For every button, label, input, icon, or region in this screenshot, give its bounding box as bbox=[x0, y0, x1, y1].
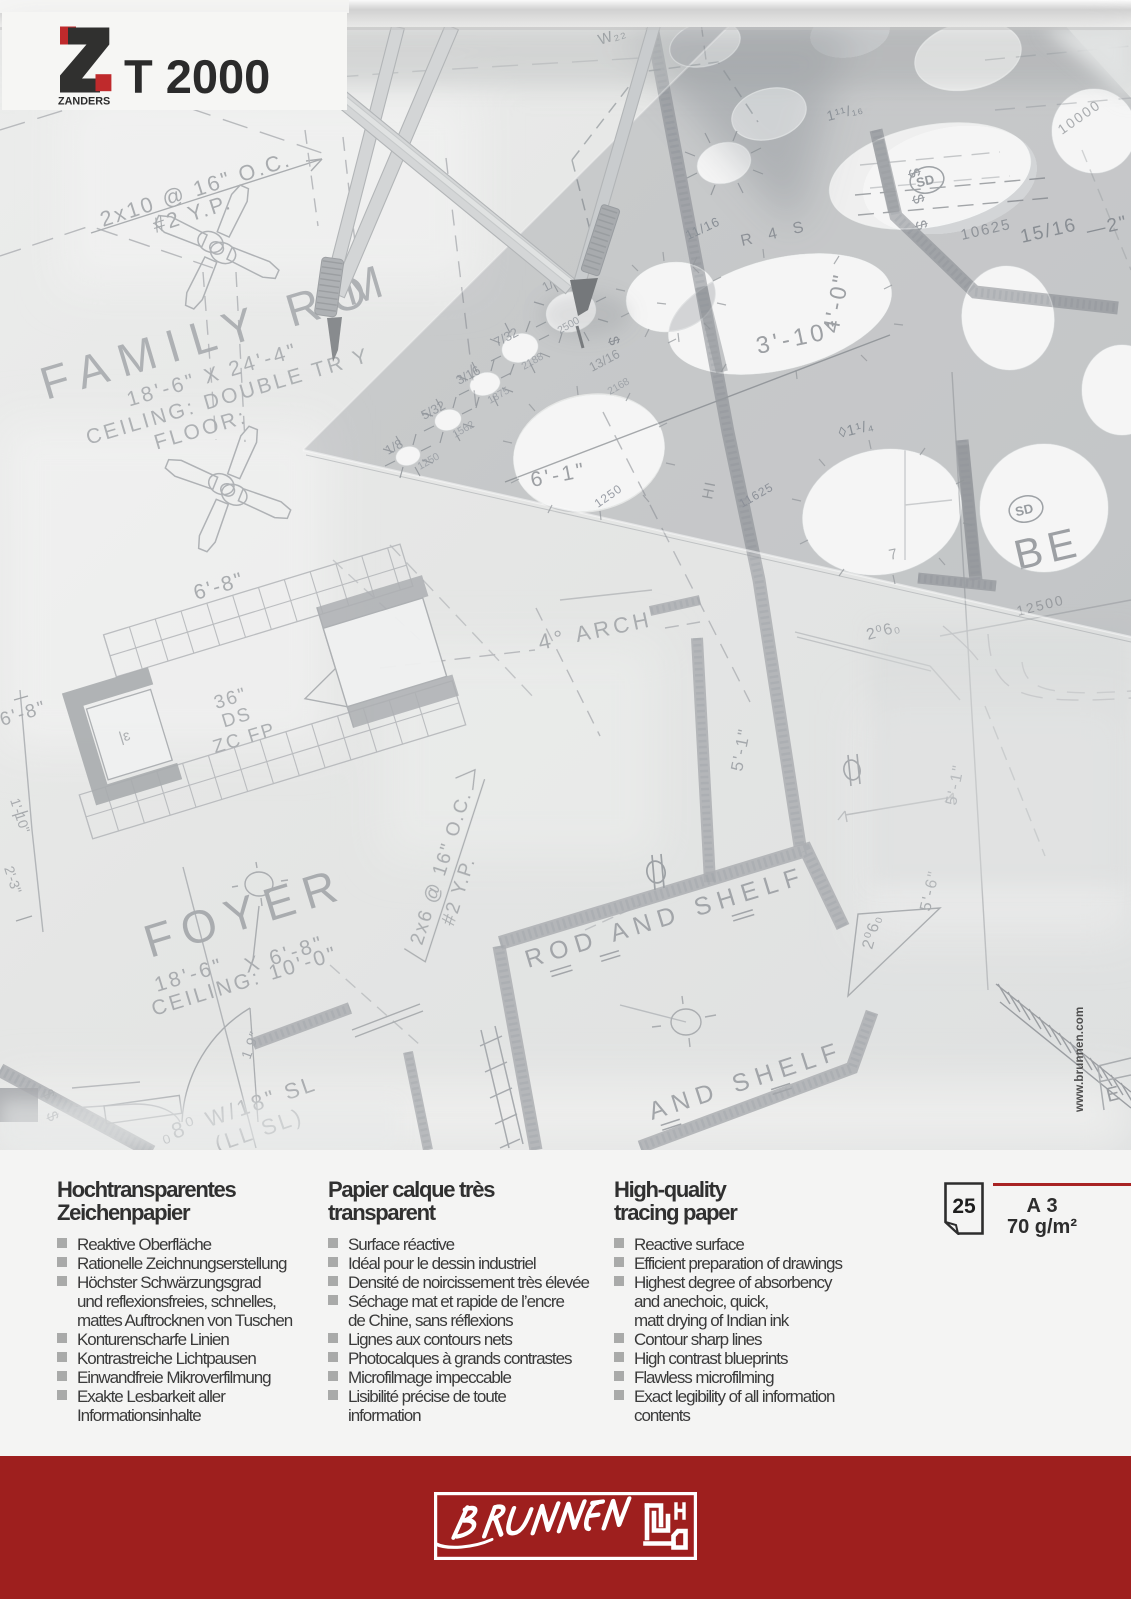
svg-text:25: 25 bbox=[952, 1195, 976, 1218]
svg-text:T 2000: T 2000 bbox=[124, 50, 270, 103]
svg-text:ZANDERS: ZANDERS bbox=[58, 96, 110, 108]
